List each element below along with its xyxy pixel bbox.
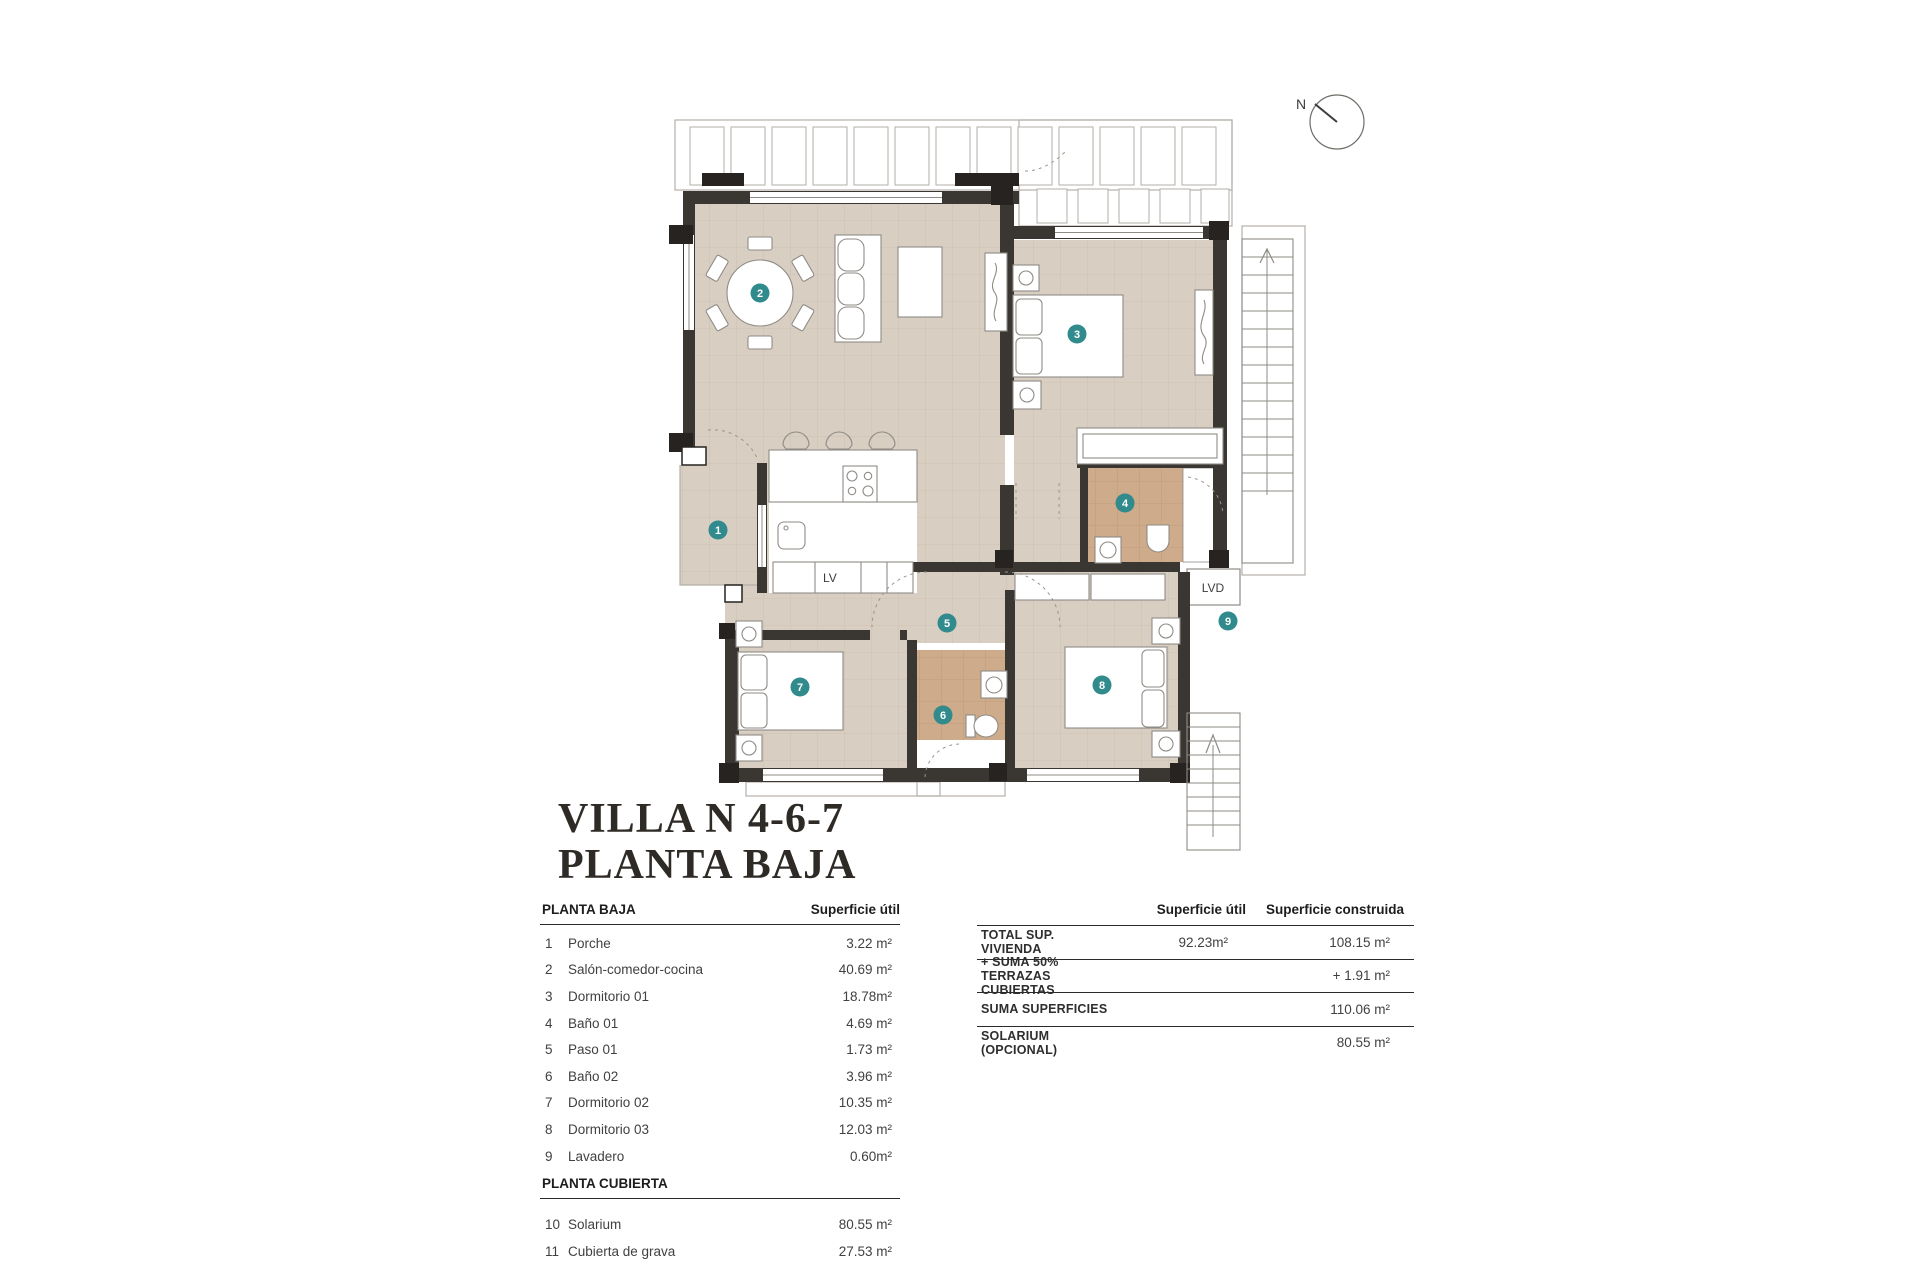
area-row-8: 8Dormitorio 0312.03 m² bbox=[540, 1116, 900, 1143]
areas-table-header: PLANTA BAJA Superficie útil bbox=[540, 902, 900, 925]
row-value: 18.78m² bbox=[842, 989, 900, 1004]
row-label: SUMA SUPERFICIES bbox=[977, 1002, 1116, 1016]
coffee-table bbox=[898, 247, 942, 317]
svg-text:2: 2 bbox=[757, 288, 763, 300]
svg-text:4: 4 bbox=[1122, 498, 1129, 510]
svg-text:1: 1 bbox=[715, 525, 721, 537]
areas-rows-cubierta: 10Solarium80.55 m² 11Cubierta de grava27… bbox=[540, 1199, 900, 1264]
row-name: Solarium bbox=[568, 1217, 839, 1232]
area-row-1: 1Porche3.22 m² bbox=[540, 930, 900, 957]
plan-title: VILLA N 4-6-7 PLANTA BAJA bbox=[558, 796, 856, 888]
area-row-7: 7Dormitorio 0210.35 m² bbox=[540, 1090, 900, 1117]
svg-text:6: 6 bbox=[940, 710, 946, 722]
totals-row-suma: SUMA SUPERFICIES 110.06 m² bbox=[977, 993, 1414, 1027]
row-name: Baño 01 bbox=[568, 1016, 846, 1031]
row-value: 3.22 m² bbox=[846, 936, 900, 951]
row-construida: + 1.91 m² bbox=[1232, 968, 1414, 983]
row-value: 3.96 m² bbox=[846, 1069, 900, 1084]
row-num: 2 bbox=[540, 962, 568, 977]
north-label: N bbox=[1296, 96, 1306, 112]
row-name: Cubierta de grava bbox=[568, 1244, 839, 1259]
section-header-planta-cubierta: PLANTA CUBIERTA bbox=[540, 1171, 900, 1199]
row-name: Baño 02 bbox=[568, 1069, 846, 1084]
areas-table: PLANTA BAJA Superficie útil 1Porche3.22 … bbox=[540, 902, 900, 1265]
staircase-upper bbox=[1242, 226, 1305, 575]
column-header-superficie-util: Superficie útil bbox=[811, 902, 900, 917]
badge-4: 4 bbox=[1116, 494, 1135, 513]
column-header-construida: Superficie construida bbox=[1246, 902, 1414, 917]
row-value: 1.73 m² bbox=[846, 1042, 900, 1057]
row-value: 80.55 m² bbox=[839, 1217, 900, 1232]
row-name: Dormitorio 01 bbox=[568, 989, 842, 1004]
row-name: Dormitorio 03 bbox=[568, 1122, 839, 1137]
row-name: Lavadero bbox=[568, 1149, 850, 1164]
row-label: TOTAL SUP. VIVIENDA bbox=[977, 928, 1116, 956]
row-construida: 80.55 m² bbox=[1232, 1035, 1414, 1050]
row-num: 10 bbox=[540, 1217, 568, 1232]
area-row-10: 10Solarium80.55 m² bbox=[540, 1211, 900, 1238]
tv-unit bbox=[985, 253, 1007, 331]
north-compass: N bbox=[1296, 95, 1364, 149]
row-construida: 110.06 m² bbox=[1232, 1002, 1414, 1017]
row-num: 9 bbox=[540, 1149, 568, 1164]
column-header-util: Superficie útil bbox=[1134, 902, 1246, 917]
area-row-5: 5Paso 011.73 m² bbox=[540, 1036, 900, 1063]
row-num: 5 bbox=[540, 1042, 568, 1057]
badge-9: 9 bbox=[1219, 612, 1238, 631]
row-name: Dormitorio 02 bbox=[568, 1095, 839, 1110]
totals-row-solarium: SOLARIUM (OPCIONAL) 80.55 m² bbox=[977, 1027, 1414, 1060]
section-header-planta-baja: PLANTA BAJA bbox=[542, 902, 636, 917]
totals-row-terrazas: + SUMA 50% TERRAZAS CUBIERTAS + 1.91 m² bbox=[977, 960, 1414, 994]
area-row-2: 2Salón-comedor-cocina40.69 m² bbox=[540, 957, 900, 984]
area-row-3: 3Dormitorio 0118.78m² bbox=[540, 983, 900, 1010]
sofa bbox=[835, 235, 881, 342]
floor-plan-page: LV LVD 1 2 3 4 5 6 7 8 9 N VILLA N 4-6-7… bbox=[0, 0, 1920, 1280]
title-line1: VILLA N 4-6-7 bbox=[558, 796, 856, 842]
totals-table: Superficie útil Superficie construida TO… bbox=[977, 902, 1414, 1059]
row-util: 92.23m² bbox=[1116, 935, 1232, 950]
svg-text:7: 7 bbox=[797, 682, 803, 694]
row-name: Paso 01 bbox=[568, 1042, 846, 1057]
row-name: Salón-comedor-cocina bbox=[568, 962, 839, 977]
totals-table-header: Superficie útil Superficie construida bbox=[977, 902, 1414, 926]
row-num: 8 bbox=[540, 1122, 568, 1137]
area-row-4: 4Baño 014.69 m² bbox=[540, 1010, 900, 1037]
svg-text:5: 5 bbox=[944, 618, 950, 630]
badge-8: 8 bbox=[1093, 676, 1112, 695]
staircase-lower bbox=[1187, 713, 1240, 850]
badge-7: 7 bbox=[791, 678, 810, 697]
row-value: 40.69 m² bbox=[839, 962, 900, 977]
row-construida: 108.15 m² bbox=[1232, 935, 1414, 950]
badge-2: 2 bbox=[751, 284, 770, 303]
row-value: 4.69 m² bbox=[846, 1016, 900, 1031]
lvd-label: LVD bbox=[1202, 581, 1225, 595]
badge-5: 5 bbox=[938, 614, 957, 633]
row-num: 7 bbox=[540, 1095, 568, 1110]
header-spacer bbox=[977, 902, 1134, 917]
row-num: 4 bbox=[540, 1016, 568, 1031]
badge-6: 6 bbox=[934, 706, 953, 725]
closet-dormitorio01 bbox=[1077, 428, 1223, 464]
floor-plan-drawing: LV LVD 1 2 3 4 5 6 7 8 9 N bbox=[655, 85, 1555, 860]
row-value: 10.35 m² bbox=[839, 1095, 900, 1110]
area-row-9: 9Lavadero0.60m² bbox=[540, 1143, 900, 1170]
row-value: 27.53 m² bbox=[839, 1244, 900, 1259]
svg-text:8: 8 bbox=[1099, 680, 1105, 692]
row-num: 6 bbox=[540, 1069, 568, 1084]
area-row-11: 11Cubierta de grava27.53 m² bbox=[540, 1238, 900, 1265]
badge-3: 3 bbox=[1068, 325, 1087, 344]
svg-text:3: 3 bbox=[1074, 329, 1080, 341]
row-value: 12.03 m² bbox=[839, 1122, 900, 1137]
row-value: 0.60m² bbox=[850, 1149, 900, 1164]
row-num: 3 bbox=[540, 989, 568, 1004]
title-line2: PLANTA BAJA bbox=[558, 842, 856, 888]
areas-rows: 1Porche3.22 m² 2Salón-comedor-cocina40.6… bbox=[540, 925, 900, 1169]
row-num: 11 bbox=[540, 1244, 568, 1259]
row-label: + SUMA 50% TERRAZAS CUBIERTAS bbox=[977, 955, 1116, 997]
lv-label: LV bbox=[823, 571, 837, 585]
svg-text:9: 9 bbox=[1225, 616, 1231, 628]
row-name: Porche bbox=[568, 936, 846, 951]
badge-1: 1 bbox=[709, 521, 728, 540]
row-label: SOLARIUM (OPCIONAL) bbox=[977, 1029, 1116, 1057]
row-num: 1 bbox=[540, 936, 568, 951]
area-row-6: 6Baño 023.96 m² bbox=[540, 1063, 900, 1090]
